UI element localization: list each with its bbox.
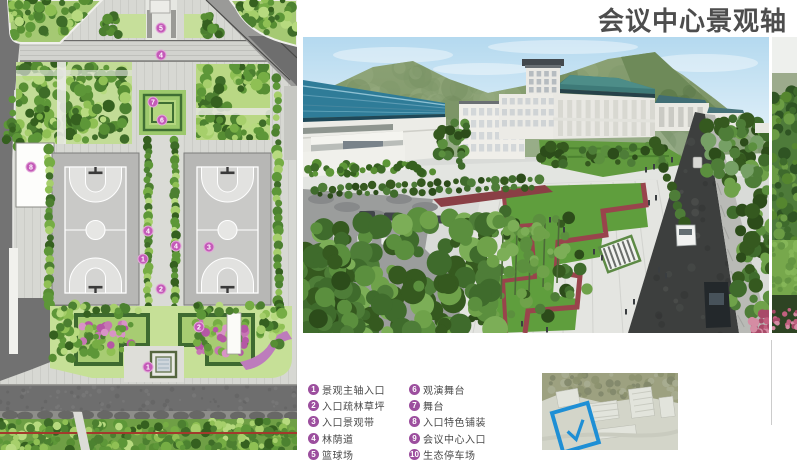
svg-text:1: 1	[141, 257, 145, 264]
svg-text:4: 4	[159, 53, 163, 60]
svg-text:6: 6	[160, 118, 164, 125]
svg-text:8: 8	[29, 165, 33, 172]
svg-text:2: 2	[159, 287, 163, 294]
svg-text:4: 4	[146, 229, 150, 236]
svg-text:3: 3	[207, 245, 211, 252]
svg-text:4: 4	[174, 244, 178, 251]
svg-text:2: 2	[197, 325, 201, 332]
svg-text:1: 1	[146, 365, 150, 372]
svg-text:7: 7	[151, 100, 155, 107]
